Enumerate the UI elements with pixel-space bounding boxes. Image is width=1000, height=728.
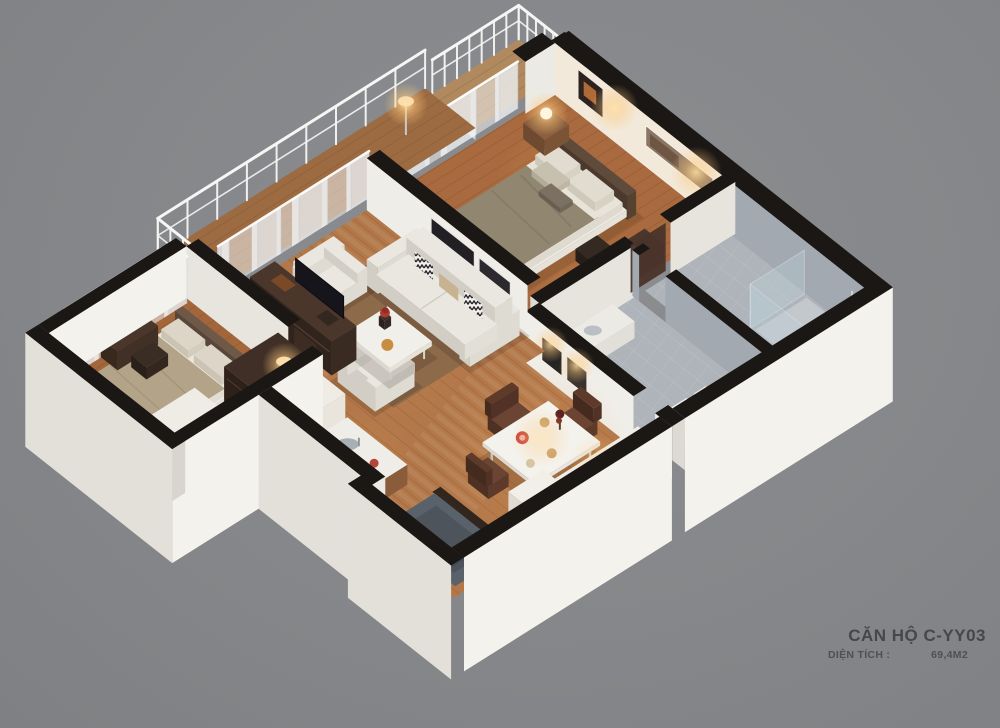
caption: CĂN HỘ C-YY03 DIỆN TÍCH : 69,4M2 [828, 626, 986, 661]
apartment-title: CĂN HỘ C-YY03 [828, 626, 986, 646]
area-label: DIỆN TÍCH : [828, 649, 890, 661]
floorplan-render: CĂN HỘ C-YY03 DIỆN TÍCH : 69,4M2 [0, 0, 1000, 728]
area-row: DIỆN TÍCH : 69,4M2 [828, 649, 986, 661]
apartment-3d-floorplan [0, 0, 1000, 728]
area-value: 69,4M2 [931, 649, 968, 661]
